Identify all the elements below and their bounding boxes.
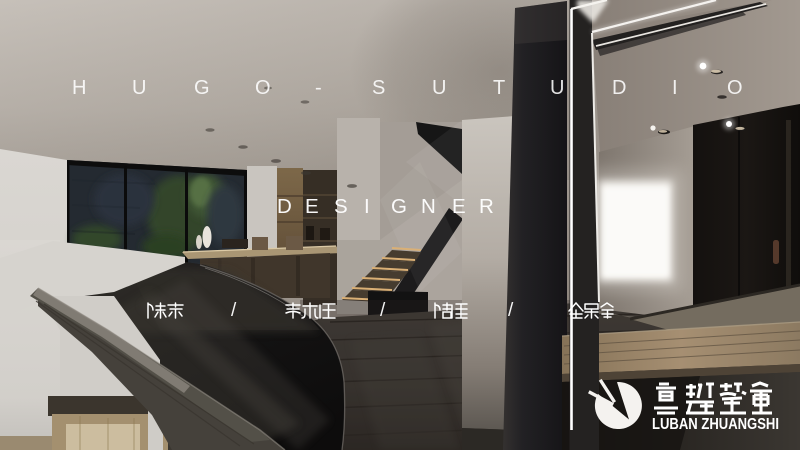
svg-text:U: U — [132, 77, 146, 99]
svg-text:/: / — [231, 300, 237, 321]
svg-text:D: D — [612, 77, 626, 99]
svg-text:U: U — [550, 77, 564, 99]
svg-text:H: H — [72, 77, 86, 99]
svg-text:O: O — [255, 77, 271, 99]
svg-text:S: S — [334, 195, 348, 218]
svg-text:R: R — [479, 195, 494, 218]
svg-text:N: N — [421, 195, 436, 218]
svg-text:D: D — [277, 195, 292, 218]
svg-text:E: E — [305, 195, 319, 218]
svg-text:O: O — [727, 77, 743, 99]
svg-text:I: I — [364, 195, 370, 218]
svg-text:G: G — [194, 77, 210, 99]
svg-text:U: U — [432, 77, 446, 99]
svg-text:S: S — [372, 77, 385, 99]
svg-text:/: / — [508, 300, 514, 321]
svg-text:LUBAN ZHUANGSHI: LUBAN ZHUANGSHI — [652, 416, 779, 433]
svg-text:E: E — [452, 195, 466, 218]
svg-text:T: T — [493, 77, 505, 99]
svg-text:G: G — [391, 195, 407, 218]
svg-text:I: I — [672, 77, 678, 99]
svg-text:-: - — [315, 77, 322, 99]
svg-text:/: / — [380, 300, 386, 321]
